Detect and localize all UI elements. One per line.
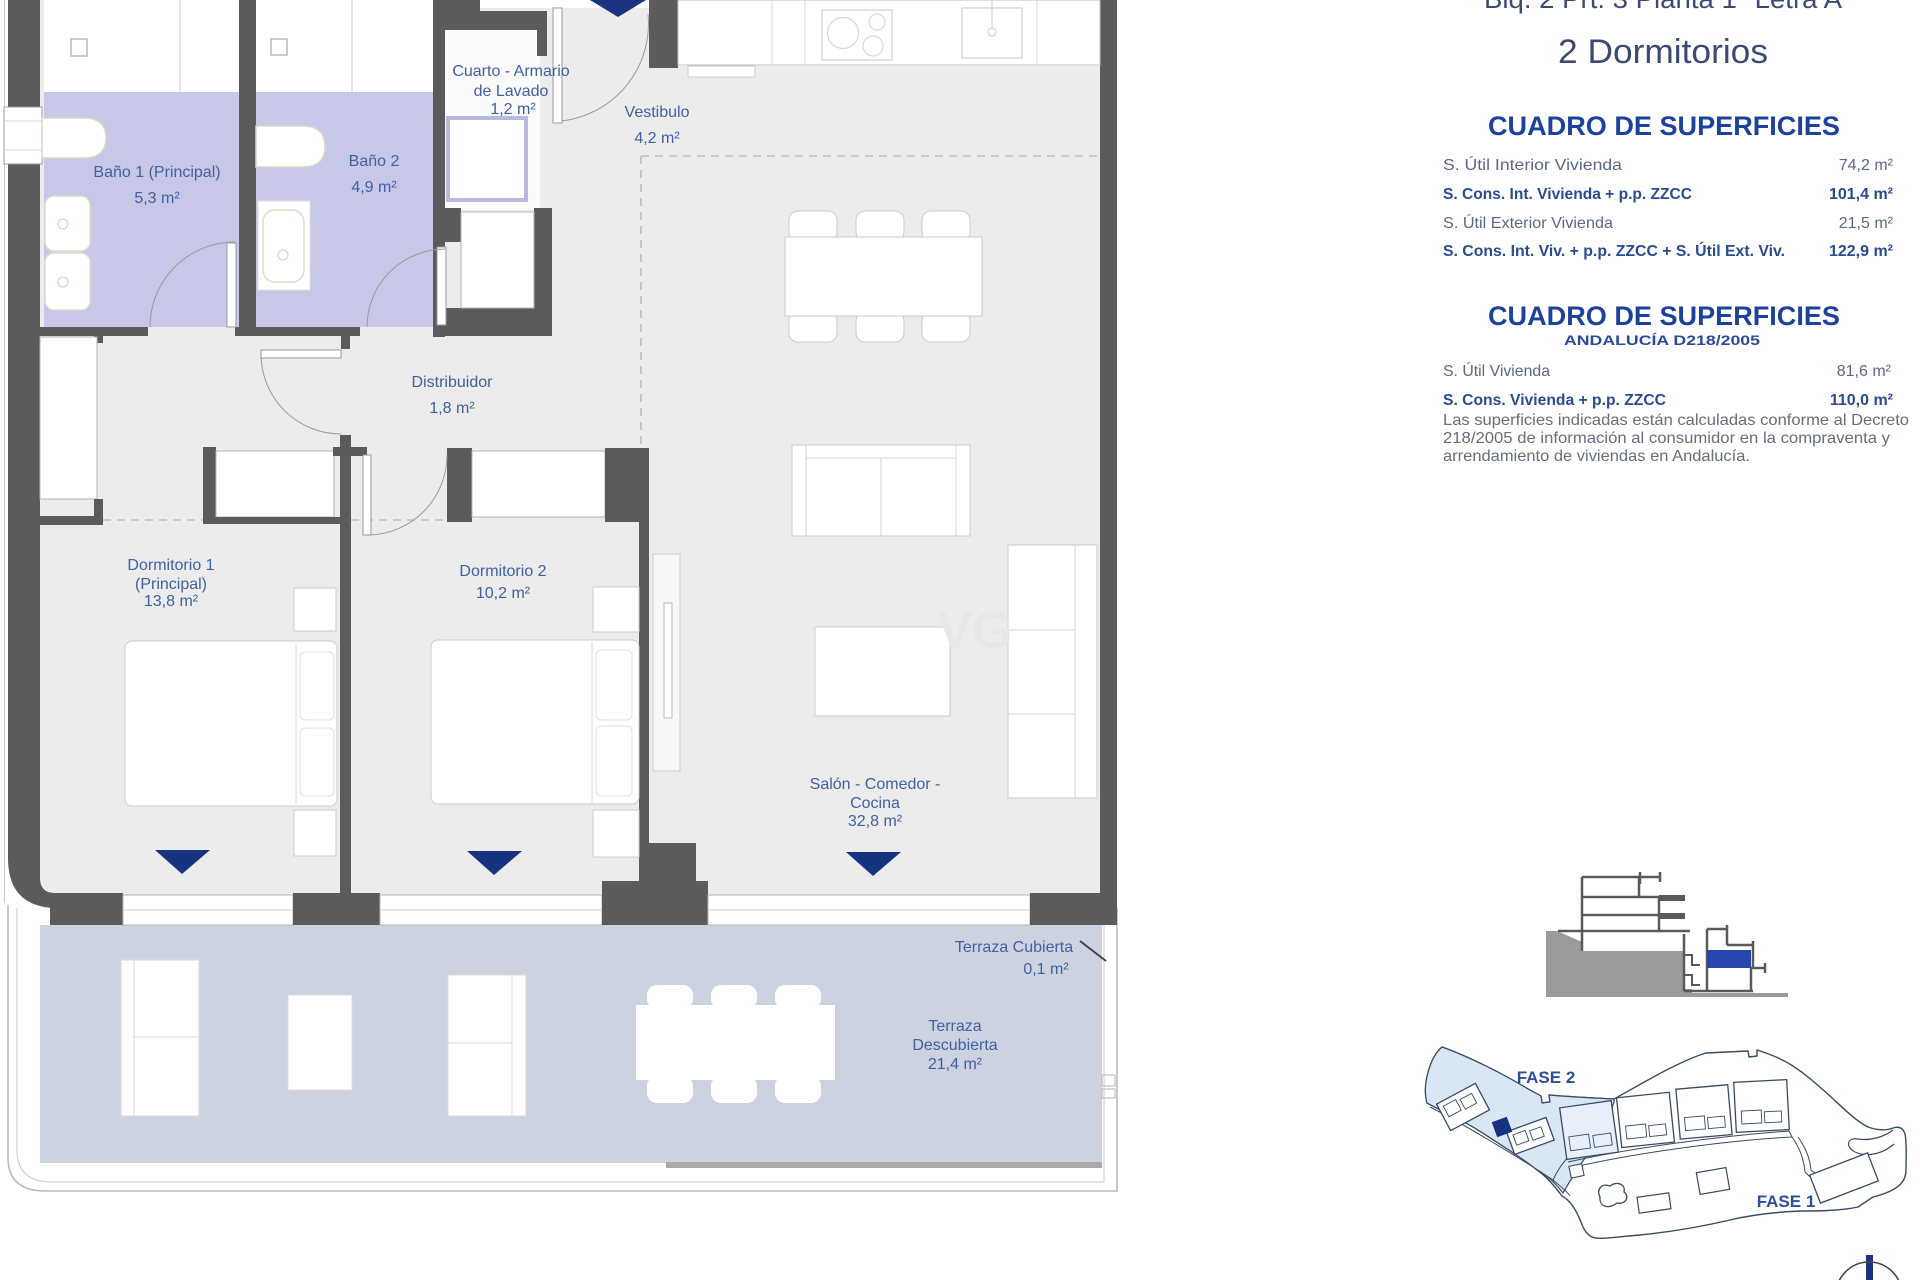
svg-text:101,4 m²: 101,4 m² bbox=[1829, 186, 1893, 203]
svg-text:Dormitorio 1: Dormitorio 1 bbox=[127, 557, 214, 574]
svg-text:S. Útil Vivienda: S. Útil Vivienda bbox=[1443, 361, 1550, 380]
svg-text:Descubierta: Descubierta bbox=[912, 1037, 997, 1054]
svg-text:Distribuidor: Distribuidor bbox=[412, 374, 494, 391]
svg-text:S. Cons. Vivienda + p.p. ZZCC: S. Cons. Vivienda + p.p. ZZCC bbox=[1443, 392, 1666, 409]
svg-text:Blq. 2 Prt. 3 Planta 1ª Letra: Blq. 2 Prt. 3 Planta 1ª Letra A bbox=[1484, 0, 1843, 14]
svg-text:de Lavado: de Lavado bbox=[474, 83, 549, 100]
svg-text:218/2005 de información al con: 218/2005 de información al consumidor en… bbox=[1443, 430, 1890, 447]
svg-text:S. Útil Exterior Vivienda: S. Útil Exterior Vivienda bbox=[1443, 213, 1613, 232]
svg-text:Las superficies indicadas está: Las superficies indicadas están calculad… bbox=[1443, 412, 1909, 429]
svg-text:21,4 m²: 21,4 m² bbox=[928, 1056, 983, 1073]
svg-text:(Principal): (Principal) bbox=[135, 576, 207, 593]
svg-text:ANDALUCÍA D218/2005: ANDALUCÍA D218/2005 bbox=[1564, 332, 1760, 348]
svg-text:4,9 m²: 4,9 m² bbox=[351, 179, 397, 196]
svg-text:5,3 m²: 5,3 m² bbox=[134, 190, 180, 207]
svg-text:FASE 1: FASE 1 bbox=[1757, 1192, 1816, 1211]
svg-text:VG: VG bbox=[937, 602, 1012, 660]
svg-text:1,8 m²: 1,8 m² bbox=[429, 400, 475, 417]
svg-text:2 Dormitorios: 2 Dormitorios bbox=[1558, 33, 1768, 71]
svg-text:Cuarto - Armario: Cuarto - Armario bbox=[452, 63, 569, 80]
svg-text:Terraza: Terraza bbox=[928, 1018, 981, 1035]
svg-text:13,8 m²: 13,8 m² bbox=[144, 593, 199, 610]
svg-text:122,9 m²: 122,9 m² bbox=[1829, 243, 1893, 260]
svg-text:110,0 m²: 110,0 m² bbox=[1830, 392, 1893, 409]
svg-text:S. Cons. Int. Vivienda + p.p.: S. Cons. Int. Vivienda + p.p. ZZCC bbox=[1443, 186, 1692, 203]
svg-text:Baño 2: Baño 2 bbox=[349, 153, 400, 170]
svg-text:74,2 m²: 74,2 m² bbox=[1839, 157, 1894, 174]
svg-text:Dormitorio 2: Dormitorio 2 bbox=[459, 563, 546, 580]
svg-text:Terraza Cubierta: Terraza Cubierta bbox=[955, 939, 1073, 956]
svg-text:CUADRO DE SUPERFICIES: CUADRO DE SUPERFICIES bbox=[1488, 111, 1840, 141]
svg-text:32,8 m²: 32,8 m² bbox=[848, 813, 903, 830]
svg-text:arrendamiento de viviendas en: arrendamiento de viviendas en Andalucía. bbox=[1443, 448, 1750, 465]
svg-text:Cocina: Cocina bbox=[850, 795, 900, 812]
svg-text:Vestibulo: Vestibulo bbox=[625, 104, 690, 121]
svg-text:Baño 1 (Principal): Baño 1 (Principal) bbox=[93, 164, 220, 181]
svg-text:Salón - Comedor -: Salón - Comedor - bbox=[810, 776, 941, 793]
svg-text:S. Cons. Int. Viv. + p.p. ZZCC: S. Cons. Int. Viv. + p.p. ZZCC + S. Útil… bbox=[1443, 241, 1785, 260]
svg-text:1,2 m²: 1,2 m² bbox=[490, 101, 536, 118]
svg-text:10,2 m²: 10,2 m² bbox=[476, 585, 531, 602]
svg-text:81,6 m²: 81,6 m² bbox=[1837, 363, 1892, 380]
svg-text:0,1 m²: 0,1 m² bbox=[1023, 961, 1069, 978]
svg-text:4,2 m²: 4,2 m² bbox=[634, 130, 680, 147]
svg-text:S. Útil Interior Vivienda: S. Útil Interior Vivienda bbox=[1443, 155, 1622, 174]
svg-text:FASE 2: FASE 2 bbox=[1517, 1068, 1576, 1087]
svg-text:21,5 m²: 21,5 m² bbox=[1839, 215, 1894, 232]
svg-text:CUADRO DE SUPERFICIES: CUADRO DE SUPERFICIES bbox=[1488, 301, 1840, 331]
